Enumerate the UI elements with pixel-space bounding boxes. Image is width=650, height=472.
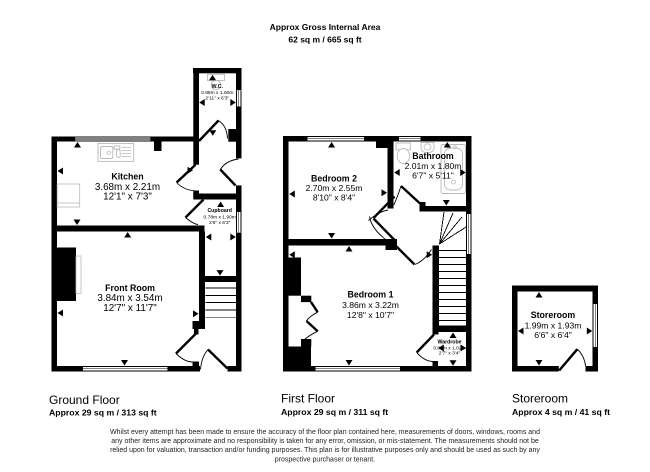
svg-text:3.86m x 3.22m: 3.86m x 3.22m (342, 300, 399, 310)
svg-text:Approx 4 sq m / 41 sq ft: Approx 4 sq m / 41 sq ft (512, 407, 610, 417)
svg-text:2'6" x 6'3": 2'6" x 6'3" (209, 220, 231, 226)
svg-text:Cupboard: Cupboard (207, 208, 232, 214)
svg-text:2'7" x 3'4": 2'7" x 3'4" (439, 351, 461, 357)
svg-text:Kitchen: Kitchen (111, 171, 143, 181)
svg-text:12'1" x 7'3": 12'1" x 7'3" (103, 192, 152, 203)
svg-text:any other items are approximat: any other items are approximate and no r… (111, 438, 539, 445)
svg-text:Approx 29 sq m / 313 sq ft: Approx 29 sq m / 313 sq ft (49, 407, 157, 417)
svg-text:Approx Gross Internal Area: Approx Gross Internal Area (270, 22, 381, 32)
svg-text:First Floor: First Floor (281, 392, 335, 406)
svg-text:0.88m x 1.60m: 0.88m x 1.60m (201, 90, 233, 96)
svg-text:6'7" x 5'11": 6'7" x 5'11" (412, 170, 454, 180)
svg-text:Storeroom: Storeroom (531, 310, 576, 320)
svg-text:Front Room: Front Room (105, 283, 155, 293)
svg-text:relied upon for valuation, tra: relied upon for valuation, transaction a… (110, 447, 540, 454)
svg-text:2.70m x 2.55m: 2.70m x 2.55m (306, 183, 363, 193)
svg-text:0.78m x 1.90m: 0.78m x 1.90m (204, 215, 236, 221)
svg-text:12'7" x 11'7": 12'7" x 11'7" (103, 303, 157, 314)
svg-text:Ground Floor: Ground Floor (49, 393, 120, 407)
svg-text:prospective purchaser or tenan: prospective purchaser or tenant. (275, 456, 375, 463)
svg-text:W.C.: W.C. (212, 84, 224, 90)
svg-text:Bedroom 1: Bedroom 1 (348, 290, 394, 300)
svg-text:12'8" x 10'7": 12'8" x 10'7" (347, 310, 394, 320)
svg-text:8'10" x 8'4": 8'10" x 8'4" (313, 192, 355, 202)
svg-text:Wardrobe: Wardrobe (437, 340, 461, 346)
svg-text:Bathroom: Bathroom (412, 151, 454, 161)
svg-text:2'11" x 6'3": 2'11" x 6'3" (205, 95, 229, 101)
svg-text:6'6" x 6'4": 6'6" x 6'4" (534, 330, 572, 340)
svg-text:1.99m x 1.93m: 1.99m x 1.93m (525, 320, 582, 330)
svg-text:Storeroom: Storeroom (512, 392, 568, 406)
svg-text:Whilst every attempt has been: Whilst every attempt has been made to en… (110, 429, 540, 436)
svg-text:62 sq m / 665 sq ft: 62 sq m / 665 sq ft (288, 35, 361, 45)
svg-text:Approx 29 sq m / 311 sq ft: Approx 29 sq m / 311 sq ft (281, 407, 388, 417)
svg-text:2.01m x 1.80m: 2.01m x 1.80m (405, 161, 462, 171)
